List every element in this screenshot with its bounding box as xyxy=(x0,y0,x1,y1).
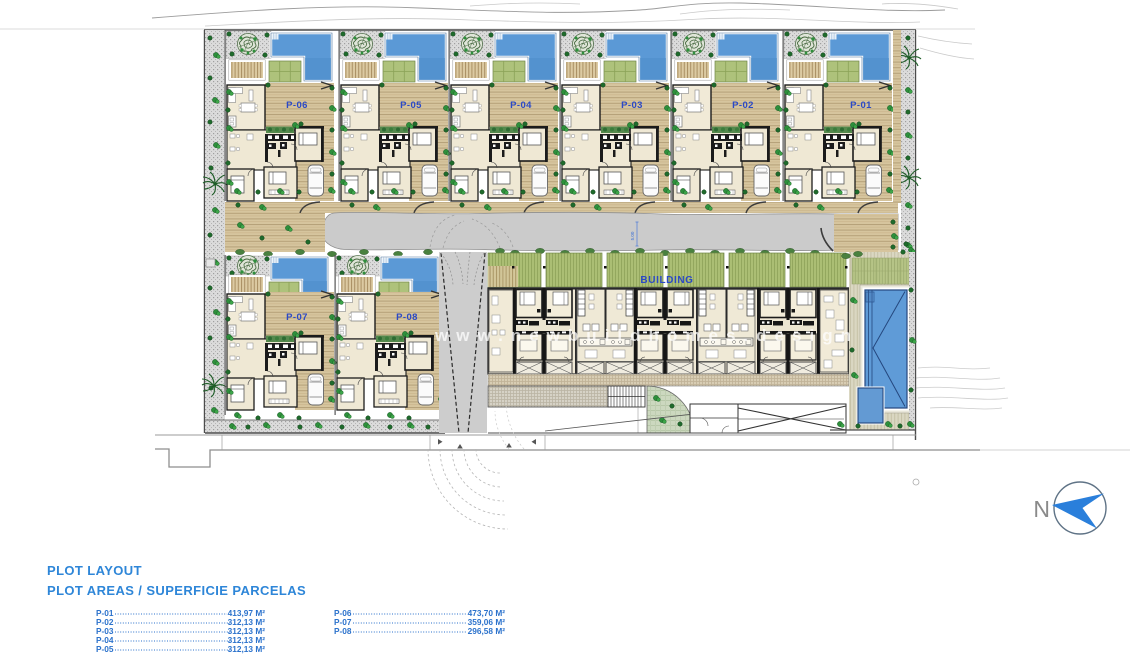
svg-text:P-04: P-04 xyxy=(510,100,532,111)
svg-text:BUILDING: BUILDING xyxy=(640,275,693,286)
svg-text:P-05: P-05 xyxy=(96,644,114,654)
svg-text:5.00: 5.00 xyxy=(630,231,635,240)
svg-text:P-08: P-08 xyxy=(334,626,352,636)
svg-text:P-03: P-03 xyxy=(621,100,643,111)
svg-text:312,13 M²: 312,13 M² xyxy=(228,644,266,654)
svg-text:P-06: P-06 xyxy=(286,100,308,111)
svg-text:PLOT AREAS / SUPERFICIE PARCEL: PLOT AREAS / SUPERFICIE PARCELAS xyxy=(47,583,306,598)
svg-text:P-07: P-07 xyxy=(286,312,308,323)
svg-text:P-05: P-05 xyxy=(400,100,422,111)
svg-text:N: N xyxy=(1033,496,1050,522)
svg-text:PLOT LAYOUT: PLOT LAYOUT xyxy=(47,563,142,578)
svg-text:296,58 M²: 296,58 M² xyxy=(468,626,506,636)
svg-text:P-01: P-01 xyxy=(850,100,872,111)
svg-text:P-02: P-02 xyxy=(732,100,754,111)
svg-text:P-08: P-08 xyxy=(396,312,418,323)
